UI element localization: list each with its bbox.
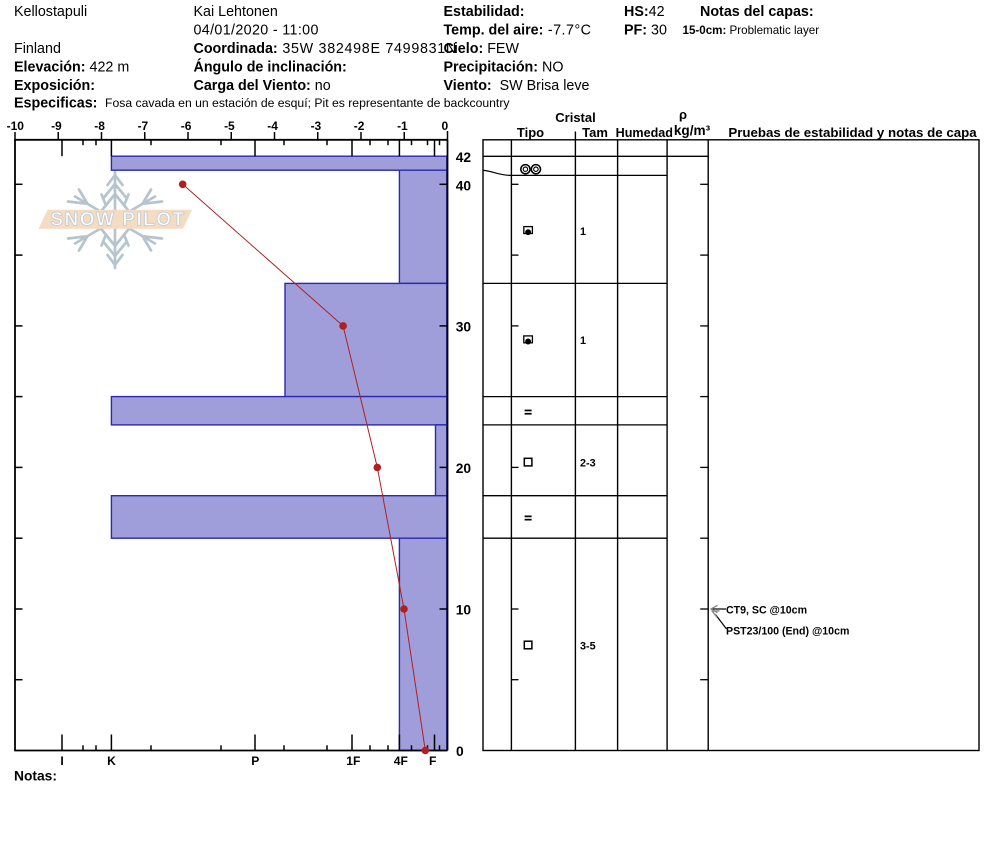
svg-text:HS:42: HS:42 xyxy=(624,4,665,20)
svg-text:15-0cm: Problematic layer: 15-0cm: Problematic layer xyxy=(683,24,820,37)
svg-text:-7: -7 xyxy=(138,119,149,133)
svg-text:40: 40 xyxy=(456,178,472,193)
svg-text:K: K xyxy=(107,754,116,768)
svg-text:-5: -5 xyxy=(224,119,235,133)
svg-text:SNOW PILOT: SNOW PILOT xyxy=(50,210,185,231)
svg-text:-8: -8 xyxy=(94,119,105,133)
svg-text:30: 30 xyxy=(456,319,472,334)
svg-text:1: 1 xyxy=(580,226,586,238)
svg-text:-1: -1 xyxy=(397,119,408,133)
svg-text:Estabilidad:: Estabilidad: xyxy=(444,4,525,20)
svg-text:-4: -4 xyxy=(267,119,278,133)
svg-text:-3: -3 xyxy=(311,119,322,133)
svg-text:I: I xyxy=(60,754,63,768)
svg-text:F: F xyxy=(429,754,436,768)
svg-text:0: 0 xyxy=(442,119,449,133)
svg-text:Viento: SW Brisa leve: Viento: SW Brisa leve xyxy=(444,78,590,94)
svg-text:P: P xyxy=(251,754,259,768)
svg-text:Coordinada: 35W 382498E 749983: Coordinada: 35W 382498E 7499831N xyxy=(194,41,457,57)
svg-text:Fosa cavada en un estación de: Fosa cavada en un estación de esquí; Pit… xyxy=(105,96,510,110)
svg-text:-10: -10 xyxy=(7,119,25,133)
svg-text:-6: -6 xyxy=(181,119,192,133)
svg-text:Pruebas de estabilidad y notas: Pruebas de estabilidad y notas de capa xyxy=(728,125,977,140)
svg-text:10: 10 xyxy=(456,603,472,618)
svg-text:Humedad: Humedad xyxy=(616,126,673,140)
svg-text:ρ: ρ xyxy=(679,107,687,122)
svg-text:1: 1 xyxy=(580,335,586,347)
svg-text:Notas del capas:: Notas del capas: xyxy=(700,4,814,20)
svg-text:3-5: 3-5 xyxy=(580,640,596,652)
svg-text:04/01/2020 - 11:00: 04/01/2020 - 11:00 xyxy=(194,22,319,38)
svg-text:PST23/100 (End) @10cm: PST23/100 (End) @10cm xyxy=(726,625,849,637)
svg-text:Temp. del aire: -7.7°C: Temp. del aire: -7.7°C xyxy=(444,22,592,38)
svg-text:2-3: 2-3 xyxy=(580,457,596,469)
svg-text:Carga del Viento: no: Carga del Viento: no xyxy=(194,78,331,94)
svg-text:20: 20 xyxy=(456,461,472,476)
svg-text:-9: -9 xyxy=(51,119,62,133)
svg-text:Notas:: Notas: xyxy=(14,769,57,784)
svg-text:42: 42 xyxy=(456,150,472,165)
svg-text:Finland: Finland xyxy=(14,41,61,57)
svg-text:Cielo: FEW: Cielo: FEW xyxy=(444,41,520,57)
svg-text:Kai Lehtonen: Kai Lehtonen xyxy=(194,4,278,20)
svg-text:CT9, SC @10cm: CT9, SC @10cm xyxy=(726,605,807,617)
svg-text:Tipo: Tipo xyxy=(517,125,544,140)
svg-text:Tam: Tam xyxy=(582,125,608,140)
svg-text:kg/m³: kg/m³ xyxy=(674,123,711,138)
svg-text:0: 0 xyxy=(456,744,464,759)
svg-text:Ángulo de inclinación:: Ángulo de inclinación: xyxy=(194,58,347,75)
svg-text:Kellostapuli: Kellostapuli xyxy=(14,4,87,20)
svg-text:Especificas:: Especificas: xyxy=(14,95,97,111)
svg-text:-2: -2 xyxy=(354,119,365,133)
svg-text:Cristal: Cristal xyxy=(555,110,595,125)
svg-text:Elevación: 422 m: Elevación: 422 m xyxy=(14,59,129,75)
svg-text:Exposición:: Exposición: xyxy=(14,78,95,94)
svg-text:Precipitación: NO: Precipitación: NO xyxy=(444,59,564,75)
svg-text:1F: 1F xyxy=(346,754,360,768)
svg-text:PF: 30: PF: 30 xyxy=(624,22,667,38)
svg-text:4F: 4F xyxy=(394,754,408,768)
